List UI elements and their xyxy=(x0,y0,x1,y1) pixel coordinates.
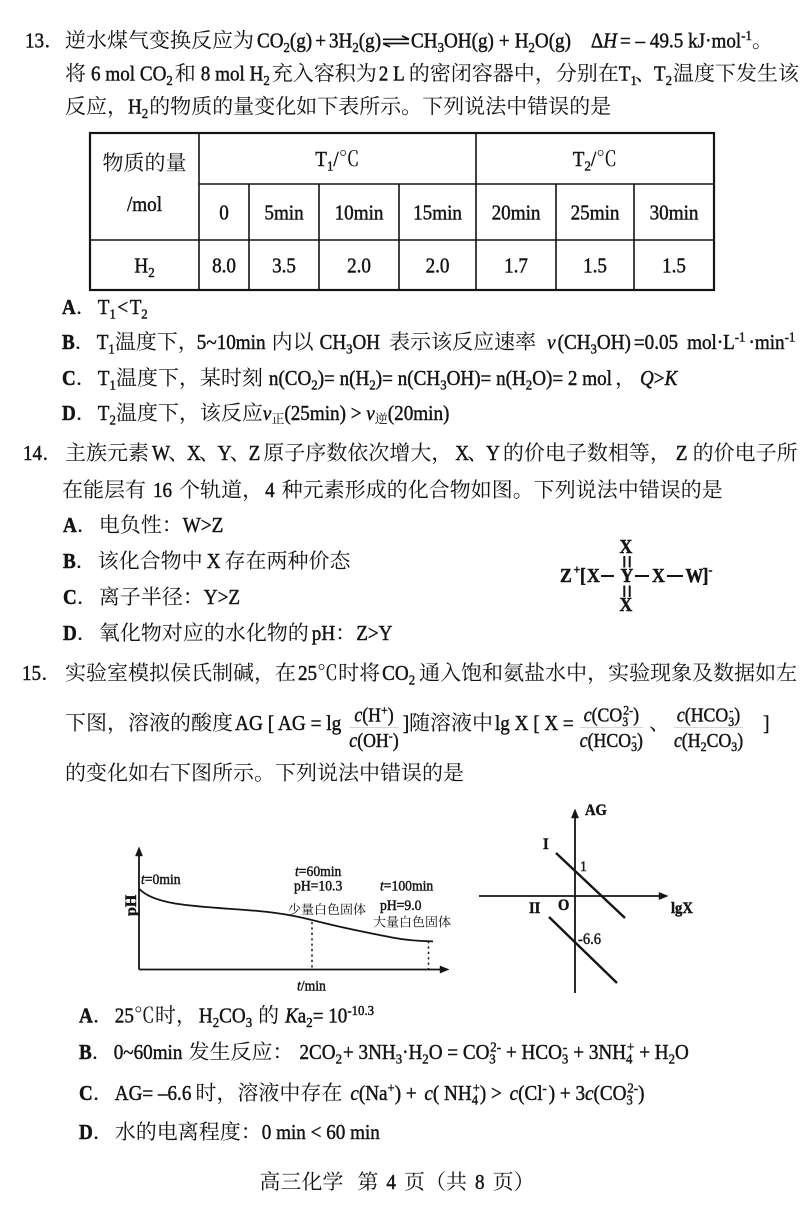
svg-text:+ 3NH: + 3NH xyxy=(343,1040,396,1064)
svg-text:1.7: 1.7 xyxy=(504,254,528,278)
svg-text:1.5: 1.5 xyxy=(583,254,607,278)
svg-text:T: T xyxy=(315,147,327,171)
svg-text:X: X xyxy=(587,566,600,587)
svg-text:) +: ) + xyxy=(395,1081,422,1105)
svg-text:8: 8 xyxy=(475,1170,485,1194)
svg-text:-: - xyxy=(563,1039,568,1055)
svg-text:5~10min: 5~10min xyxy=(197,330,266,354)
svg-text:T: T xyxy=(654,62,666,86)
svg-text:T: T xyxy=(573,147,585,171)
svg-text:B: B xyxy=(63,549,76,573)
svg-text:(g): (g) xyxy=(359,29,381,53)
svg-text:<: < xyxy=(117,295,128,319)
svg-text:T: T xyxy=(98,366,110,390)
svg-text:1: 1 xyxy=(110,307,116,323)
svg-text:+: + xyxy=(499,29,510,53)
svg-text:W>Z: W>Z xyxy=(183,513,223,537)
svg-text:(CH: (CH xyxy=(558,330,591,354)
svg-text:B: B xyxy=(62,330,75,354)
svg-text:T: T xyxy=(98,401,110,425)
svg-text:2-: 2- xyxy=(490,1039,501,1055)
svg-text:-1: -1 xyxy=(741,28,752,44)
svg-text:C: C xyxy=(63,585,77,609)
svg-text:A: A xyxy=(63,513,78,537)
svg-text:-1: -1 xyxy=(785,329,796,345)
svg-text:X: X xyxy=(187,441,201,465)
svg-text:H: H xyxy=(134,254,148,278)
svg-text:Q: Q xyxy=(640,366,654,390)
svg-text:-: - xyxy=(709,562,713,577)
svg-text:CH: CH xyxy=(320,330,347,354)
svg-text:3: 3 xyxy=(246,1015,252,1031)
svg-text:B: B xyxy=(79,1040,92,1064)
svg-text:+ HCO: + HCO xyxy=(506,1040,562,1064)
svg-text:15min: 15min xyxy=(413,201,462,225)
svg-text:O: O xyxy=(558,897,569,914)
svg-text:K: K xyxy=(284,1004,299,1028)
svg-text:O = CO: O = CO xyxy=(429,1040,490,1064)
svg-text:n(CO: n(CO xyxy=(269,366,311,390)
svg-text:(OH: (OH xyxy=(357,731,389,752)
svg-text:0 min < 60 min: 0 min < 60 min xyxy=(262,1120,380,1144)
svg-text:pH: pH xyxy=(312,621,335,645)
svg-text:CO: CO xyxy=(219,1004,246,1028)
svg-text:15: 15 xyxy=(22,661,41,685)
svg-text:2-: 2- xyxy=(623,703,633,718)
svg-text:pH: pH xyxy=(123,894,140,916)
svg-text:( NH: ( NH xyxy=(433,1081,472,1105)
svg-text:=0.05: =0.05 xyxy=(634,330,678,354)
svg-text:Δ: Δ xyxy=(591,29,603,53)
svg-text:(20min): (20min) xyxy=(388,401,450,425)
svg-text:(Cl: (Cl xyxy=(518,1081,543,1105)
svg-text:0: 0 xyxy=(219,201,229,225)
svg-text:D: D xyxy=(62,401,76,425)
svg-text:4: 4 xyxy=(265,478,275,502)
svg-text:3.5: 3.5 xyxy=(272,254,296,278)
svg-text:AG= –6.6: AG= –6.6 xyxy=(115,1081,192,1105)
svg-text:D: D xyxy=(79,1120,93,1144)
svg-text:OH(g): OH(g) xyxy=(444,29,494,53)
svg-text:-: - xyxy=(729,703,733,718)
svg-text:II: II xyxy=(529,900,540,917)
svg-text:= – 49.5 kJ·mol: = – 49.5 kJ·mol xyxy=(620,29,741,53)
svg-text:(CO: (CO xyxy=(592,706,623,727)
svg-text:OH): OH) xyxy=(597,330,631,354)
svg-text:X: X xyxy=(207,549,221,573)
svg-text:-: - xyxy=(543,1080,548,1096)
svg-text:2-: 2- xyxy=(627,1080,638,1096)
svg-text:+ 3NH: + 3NH xyxy=(573,1040,626,1064)
svg-text:·H: ·H xyxy=(402,1040,422,1064)
svg-text:H: H xyxy=(199,1004,213,1028)
svg-text:T: T xyxy=(619,62,631,86)
svg-text:Y: Y xyxy=(486,441,500,465)
svg-text:>: > xyxy=(654,366,665,390)
svg-text:X: X xyxy=(652,566,665,587)
svg-text:Z: Z xyxy=(249,441,261,465)
svg-text:]: ] xyxy=(763,711,769,735)
svg-text:8 mol H: 8 mol H xyxy=(201,62,264,86)
svg-text:OH)= n(H: OH)= n(H xyxy=(447,366,526,390)
svg-text:v: v xyxy=(366,401,375,425)
svg-text:pH=10.3: pH=10.3 xyxy=(294,879,342,895)
svg-text:AG [ AG = lg: AG [ AG = lg xyxy=(235,711,342,735)
svg-text:W: W xyxy=(686,566,704,587)
svg-text:6 mol CO: 6 mol CO xyxy=(91,62,166,86)
svg-text:X: X xyxy=(455,441,469,465)
svg-text:(CO: (CO xyxy=(594,1081,627,1105)
svg-text:CH: CH xyxy=(411,29,438,53)
svg-text:2: 2 xyxy=(141,307,147,323)
svg-text:CO: CO xyxy=(707,731,732,752)
svg-text:(Na: (Na xyxy=(359,1081,388,1105)
svg-text:Y: Y xyxy=(218,441,232,465)
svg-text:T: T xyxy=(97,330,109,354)
svg-text:C: C xyxy=(62,366,76,390)
svg-text:): ) xyxy=(734,706,740,727)
svg-text:25: 25 xyxy=(298,661,317,685)
svg-text:v: v xyxy=(263,401,272,425)
svg-text:1: 1 xyxy=(108,342,114,358)
svg-text:/: / xyxy=(333,147,338,171)
svg-text:1: 1 xyxy=(631,73,637,89)
svg-text:AG: AG xyxy=(585,802,607,819)
svg-text:): ) xyxy=(637,731,643,752)
svg-text:A: A xyxy=(79,1004,94,1028)
svg-text:2: 2 xyxy=(666,73,672,89)
svg-text:25: 25 xyxy=(115,1004,134,1028)
svg-text:2CO: 2CO xyxy=(300,1040,336,1064)
svg-text:0~60min: 0~60min xyxy=(114,1040,183,1064)
svg-text:K: K xyxy=(664,366,679,390)
svg-text:=0min: =0min xyxy=(145,872,181,888)
svg-text:) + 3: ) + 3 xyxy=(549,1081,585,1105)
svg-text:OH: OH xyxy=(353,330,381,354)
svg-text:+: + xyxy=(473,1080,480,1096)
svg-text:+: + xyxy=(627,1039,634,1055)
svg-text:1.5: 1.5 xyxy=(662,254,686,278)
svg-text:-: - xyxy=(632,728,636,743)
svg-text:O(g): O(g) xyxy=(535,29,571,53)
svg-text:Z>Y: Z>Y xyxy=(356,621,392,645)
svg-text:A: A xyxy=(62,295,77,319)
svg-text:+: + xyxy=(388,1080,395,1096)
svg-text:2: 2 xyxy=(110,413,116,429)
svg-text:2: 2 xyxy=(263,73,269,89)
svg-text:pH=9.0: pH=9.0 xyxy=(380,898,421,914)
svg-text:8.0: 8.0 xyxy=(212,254,236,278)
svg-text:Y: Y xyxy=(621,566,634,587)
svg-text:= 10: = 10 xyxy=(313,1004,348,1028)
svg-text:H: H xyxy=(515,29,529,53)
svg-text:2: 2 xyxy=(148,265,154,281)
svg-text:C: C xyxy=(79,1081,93,1105)
svg-text:O: O xyxy=(675,1040,689,1064)
svg-text:D: D xyxy=(63,621,77,645)
svg-text:(g): (g) xyxy=(290,29,312,53)
svg-text:lg X [ X =: lg X [ X = xyxy=(495,711,574,735)
svg-text:mol·L: mol·L xyxy=(687,330,735,354)
svg-text:+: + xyxy=(315,29,326,53)
svg-text:v: v xyxy=(547,330,556,354)
svg-text:Z: Z xyxy=(676,441,688,465)
svg-text:/mol: /mol xyxy=(127,192,162,216)
svg-text:X: X xyxy=(620,537,633,558)
svg-text:(25min) >: (25min) > xyxy=(284,401,366,425)
svg-text:16: 16 xyxy=(153,478,172,502)
svg-text:CO: CO xyxy=(257,29,284,53)
svg-text:1: 1 xyxy=(580,859,587,875)
svg-text:CO: CO xyxy=(382,661,409,685)
svg-text:2.0: 2.0 xyxy=(426,254,450,278)
svg-text:Z: Z xyxy=(560,566,572,587)
svg-text:5min: 5min xyxy=(264,201,304,225)
svg-text:T: T xyxy=(130,295,142,319)
svg-text:lgX: lgX xyxy=(671,900,693,917)
svg-text:) >: ) > xyxy=(480,1081,507,1105)
svg-text:[: [ xyxy=(580,566,586,587)
svg-text:2: 2 xyxy=(166,73,172,89)
svg-text:2: 2 xyxy=(409,673,415,689)
svg-text:): ) xyxy=(393,731,399,752)
svg-text:-1: -1 xyxy=(735,329,746,345)
svg-text:4: 4 xyxy=(386,1170,396,1194)
svg-text:13: 13 xyxy=(25,29,44,53)
svg-text:14: 14 xyxy=(23,441,43,465)
svg-text:/: / xyxy=(591,147,596,171)
svg-text:1: 1 xyxy=(110,378,116,394)
svg-text:): ) xyxy=(737,731,743,752)
svg-text:O)= 2 mol: O)= 2 mol xyxy=(532,366,612,390)
svg-text:I: I xyxy=(543,836,549,853)
svg-text:): ) xyxy=(388,706,394,727)
svg-text:3H: 3H xyxy=(329,29,352,53)
svg-text:)= n(H: )= n(H xyxy=(318,366,370,390)
svg-text:X: X xyxy=(620,595,633,616)
svg-text:30min: 30min xyxy=(650,201,699,225)
svg-text:2: 2 xyxy=(336,1052,342,1068)
svg-text:Y>Z: Y>Z xyxy=(204,585,240,609)
svg-text:+ H: + H xyxy=(639,1040,668,1064)
svg-text:]: ] xyxy=(403,711,409,735)
svg-text:): ) xyxy=(633,706,639,727)
svg-text:2: 2 xyxy=(142,106,148,122)
svg-text:H: H xyxy=(128,95,142,119)
svg-text:20min: 20min xyxy=(492,201,541,225)
svg-text:10min: 10min xyxy=(335,201,384,225)
svg-text:(HCO: (HCO xyxy=(685,706,728,727)
svg-text:-6.6: -6.6 xyxy=(578,931,601,948)
svg-text:-10.3: -10.3 xyxy=(347,1003,374,1019)
svg-text:(HCO: (HCO xyxy=(588,731,631,752)
svg-text:25min: 25min xyxy=(571,201,620,225)
svg-text:(H: (H xyxy=(362,706,381,727)
svg-text:·min: ·min xyxy=(749,330,786,354)
svg-text:/min: /min xyxy=(301,979,326,995)
svg-text:H: H xyxy=(602,29,618,53)
svg-text:2 L: 2 L xyxy=(379,62,405,86)
svg-text:2.0: 2.0 xyxy=(347,254,371,278)
svg-text:): ) xyxy=(638,1081,644,1105)
svg-text:=100min: =100min xyxy=(384,879,434,895)
svg-text:W: W xyxy=(152,441,170,465)
svg-text:)= n(CH: )= n(CH xyxy=(376,366,440,390)
svg-text:(H: (H xyxy=(682,731,701,752)
svg-text:T: T xyxy=(98,295,110,319)
